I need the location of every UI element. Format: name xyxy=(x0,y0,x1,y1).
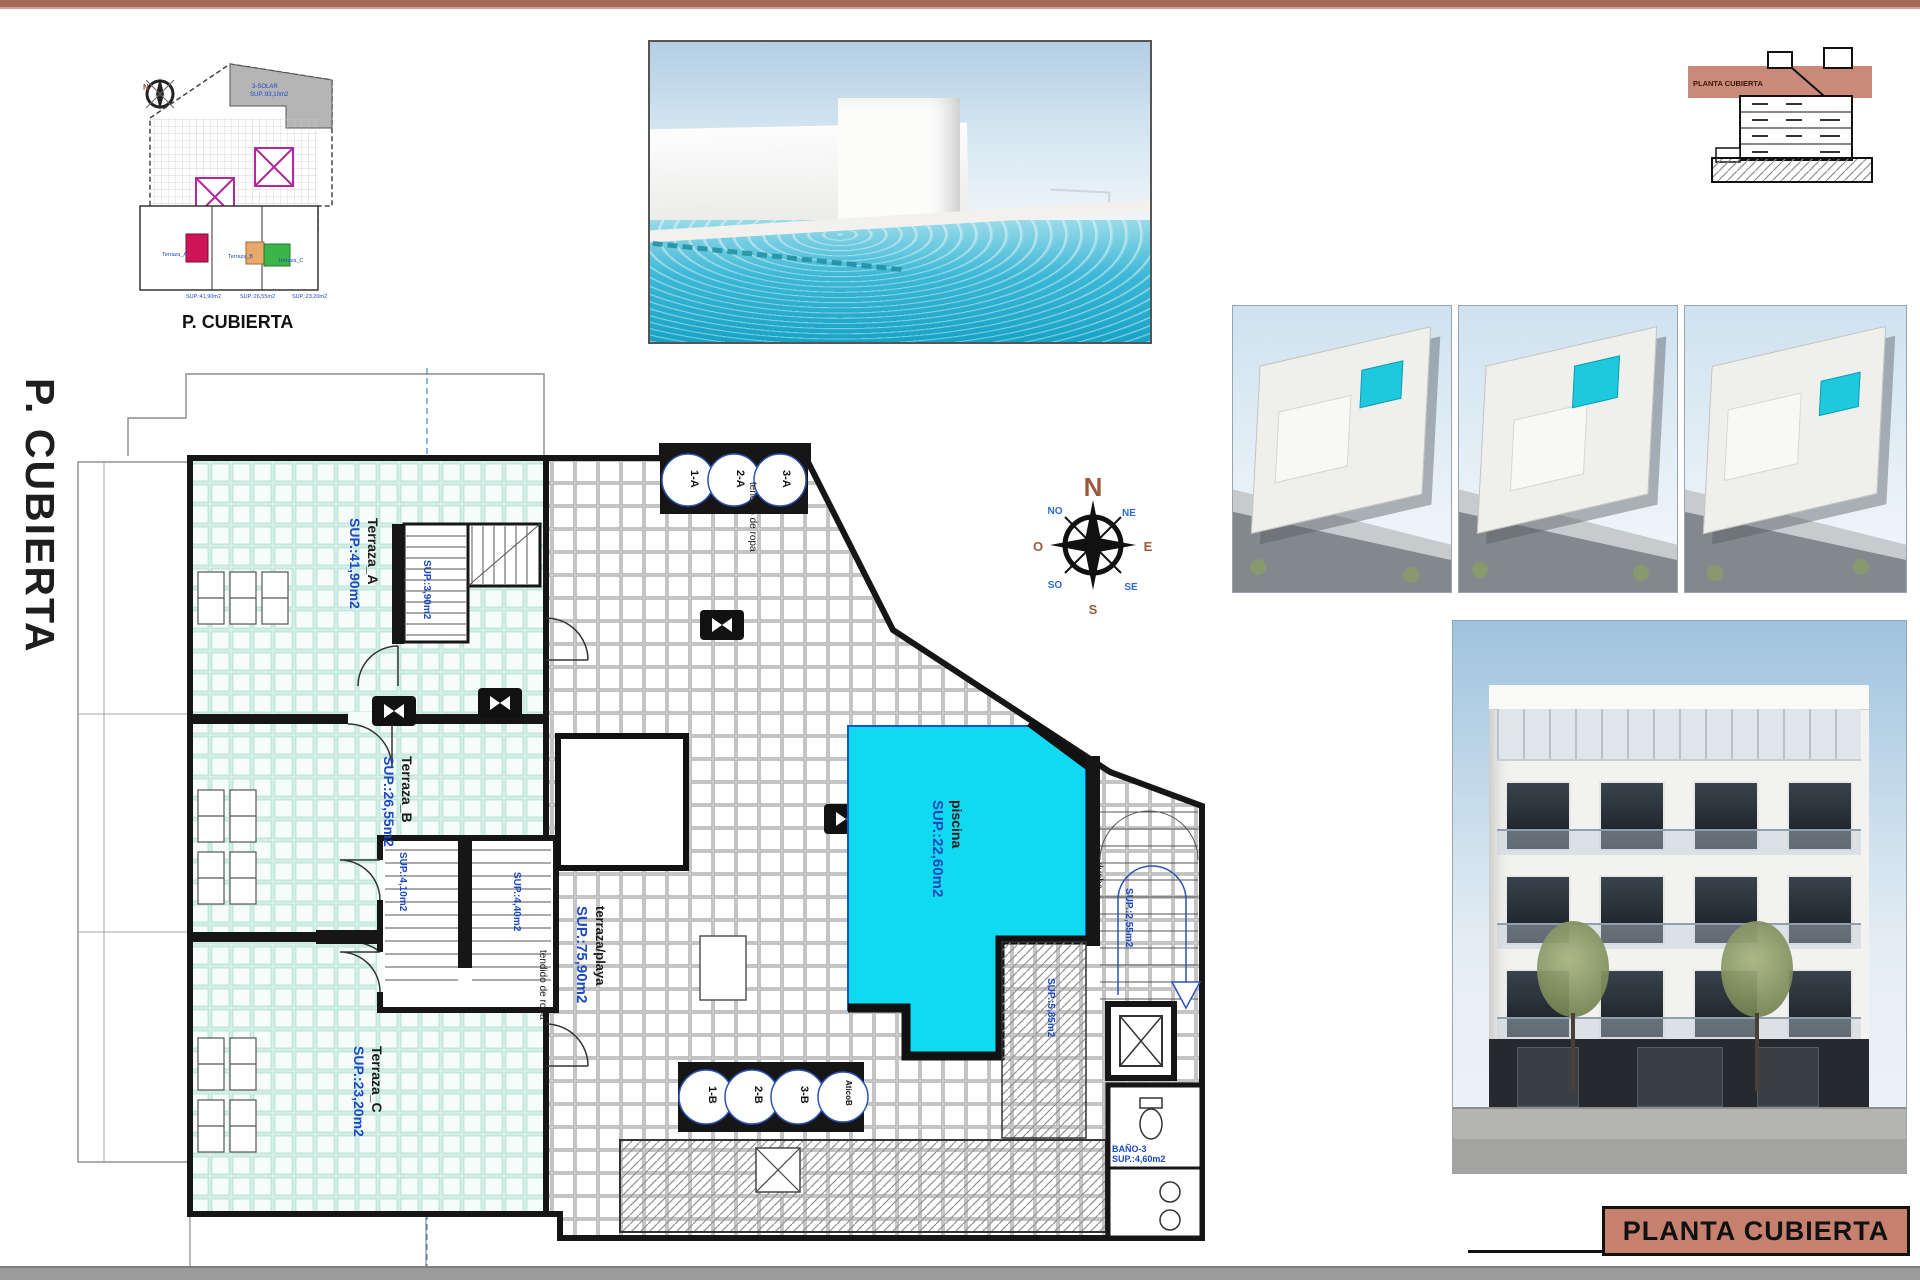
drain-grate xyxy=(756,1148,800,1192)
svg-text:SUP.:2,55m2: SUP.:2,55m2 xyxy=(1123,888,1134,948)
svg-text:SUP.:4,10m2: SUP.:4,10m2 xyxy=(397,852,408,912)
roof-plan: 1-A 2-A 3-A 1-B 2-B 3-B AticoB Terraza_A… xyxy=(78,368,1202,1274)
svg-text:Terraza_C: Terraza_C xyxy=(278,258,303,264)
basin-icon xyxy=(1160,1182,1180,1202)
key-plan-crossed-box xyxy=(255,148,293,186)
svg-text:SE: SE xyxy=(1124,582,1138,593)
svg-text:NE: NE xyxy=(1122,508,1136,519)
roof-fixture xyxy=(700,936,746,1000)
aerial-roof-pool xyxy=(1571,355,1619,408)
elevator xyxy=(1108,1004,1174,1078)
title-block-label: PLANTA CUBIERTA xyxy=(1623,1216,1889,1247)
svg-text:SUP.:5,85m2: SUP.:5,85m2 xyxy=(1045,978,1056,1038)
svg-text:SUP.:75,90m2: SUP.:75,90m2 xyxy=(573,906,590,1003)
aerial-building-mass xyxy=(1703,326,1886,535)
svg-text:SUP.:41,90m2: SUP.:41,90m2 xyxy=(347,518,363,609)
title-block-leader-line xyxy=(1468,1250,1602,1253)
tree-icon xyxy=(1633,565,1649,581)
svg-text:tendido de ropa: tendido de ropa xyxy=(537,950,548,1020)
basin-icon xyxy=(1160,1210,1180,1230)
compass-rose-icon: N S E O NE NO SE SO xyxy=(1033,472,1153,617)
elevation-floor-row xyxy=(1489,781,1869,853)
solarium-hatch xyxy=(1002,942,1086,1138)
elevation-facade xyxy=(1489,685,1869,1109)
key-plan-unit-b-marker xyxy=(246,242,264,264)
toilet-icon xyxy=(1140,1109,1162,1139)
svg-text:3-B: 3-B xyxy=(798,1086,810,1104)
svg-text:ducha: ducha xyxy=(1093,862,1104,890)
svg-text:NO: NO xyxy=(1048,506,1063,517)
svg-text:2-B: 2-B xyxy=(752,1086,764,1104)
svg-text:SUP.:4,40m2: SUP.:4,40m2 xyxy=(511,872,522,932)
skylight-box-top: 1-A 2-A 3-A xyxy=(660,446,808,514)
svg-text:SUP.:3,90m2: SUP.:3,90m2 xyxy=(421,560,432,620)
tree-icon xyxy=(1721,921,1793,1017)
svg-text:piscina: piscina xyxy=(949,800,965,848)
svg-text:S: S xyxy=(1089,602,1098,617)
aerial-render-1 xyxy=(1232,305,1452,593)
central-skylight xyxy=(558,736,686,868)
svg-text:3-A: 3-A xyxy=(780,470,792,488)
svg-text:SUP.:23,20m2: SUP.:23,20m2 xyxy=(292,294,327,300)
svg-text:BAÑO-3: BAÑO-3 xyxy=(1112,1144,1147,1154)
svg-text:E: E xyxy=(1144,539,1153,554)
key-plan-compass-icon: N xyxy=(143,78,174,110)
svg-text:Terraza_A: Terraza_A xyxy=(365,518,381,585)
aerial-penthouse xyxy=(1274,395,1351,484)
svg-text:SUP.:41,90m2: SUP.:41,90m2 xyxy=(186,294,221,300)
aerial-render-3 xyxy=(1684,305,1907,593)
elevation-storefront xyxy=(1489,1039,1869,1109)
pool-render-photo xyxy=(648,40,1152,344)
svg-text:SUP.:26,55m2: SUP.:26,55m2 xyxy=(240,294,275,300)
svg-text:SUP.:22,60m2: SUP.:22,60m2 xyxy=(929,800,946,897)
svg-text:terraza/playa: terraza/playa xyxy=(593,906,608,986)
aerial-penthouse xyxy=(1510,402,1587,491)
drawing-sheet: P. CUBIERTA xyxy=(0,0,1920,1280)
svg-text:1-A: 1-A xyxy=(688,470,700,488)
aerial-roof-pool xyxy=(1359,360,1404,409)
svg-text:O: O xyxy=(1033,539,1043,554)
svg-text:Terraza_A: Terraza_A xyxy=(162,252,187,258)
lower-hatch-strip xyxy=(620,1140,1106,1232)
elevation-render xyxy=(1452,620,1907,1174)
tree-icon xyxy=(1537,921,1609,1017)
tree-icon xyxy=(1707,565,1723,581)
svg-text:2-A: 2-A xyxy=(734,470,746,488)
elevation-street xyxy=(1453,1107,1906,1173)
aerial-penthouse xyxy=(1724,392,1802,481)
elevation-penthouse-floor xyxy=(1497,709,1861,761)
svg-text:1-B: 1-B xyxy=(706,1086,718,1104)
title-block: PLANTA CUBIERTA xyxy=(1602,1206,1910,1256)
svg-text:Terraza_B: Terraza_B xyxy=(399,756,415,823)
section-thumbnail: PLANTA CUBIERTA xyxy=(1688,48,1872,182)
render-pool-water xyxy=(650,220,1150,342)
tree-icon xyxy=(1853,559,1869,575)
svg-text:SUP.:23,20m2: SUP.:23,20m2 xyxy=(351,1046,367,1137)
aerial-roof-pool xyxy=(1819,372,1861,417)
svg-text:SO: SO xyxy=(1048,580,1063,591)
svg-text:SUP.:26,55m2: SUP.:26,55m2 xyxy=(381,756,397,847)
elevation-parapet xyxy=(1489,685,1869,710)
svg-text:Terraza_B: Terraza_B xyxy=(228,254,253,260)
skylight-box-bottom: 1-B 2-B 3-B AticoB xyxy=(678,1062,868,1132)
tree-icon xyxy=(1472,562,1488,578)
svg-text:Terraza_C: Terraza_C xyxy=(369,1046,385,1113)
section-band-label: PLANTA CUBIERTA xyxy=(1693,79,1763,88)
tree-trunk xyxy=(1571,1013,1575,1091)
key-plan-caption: P. CUBIERTA xyxy=(182,312,293,332)
svg-text:tendido de ropa: tendido de ropa xyxy=(747,482,758,552)
svg-text:SUP.:4,60m2: SUP.:4,60m2 xyxy=(1112,1154,1165,1164)
svg-text:3-SOLAR: 3-SOLAR xyxy=(252,84,278,90)
svg-text:AticoB: AticoB xyxy=(844,1080,853,1106)
svg-text:N: N xyxy=(1084,472,1103,502)
key-plan: N 3-SOLAR SUP.:93,10m2 Terraza_A Terraza… xyxy=(140,64,332,332)
aerial-building-mass xyxy=(1476,326,1657,534)
key-plan-unit-a-marker xyxy=(186,234,208,262)
aerial-render-2 xyxy=(1458,305,1678,593)
render-stair-cube xyxy=(838,98,960,230)
tree-trunk xyxy=(1755,1013,1759,1091)
aerial-building-mass xyxy=(1250,326,1431,534)
svg-text:N: N xyxy=(143,83,149,92)
svg-text:SUP.:93,10m2: SUP.:93,10m2 xyxy=(250,92,289,98)
sheet-bottom-bar xyxy=(0,1266,1920,1280)
